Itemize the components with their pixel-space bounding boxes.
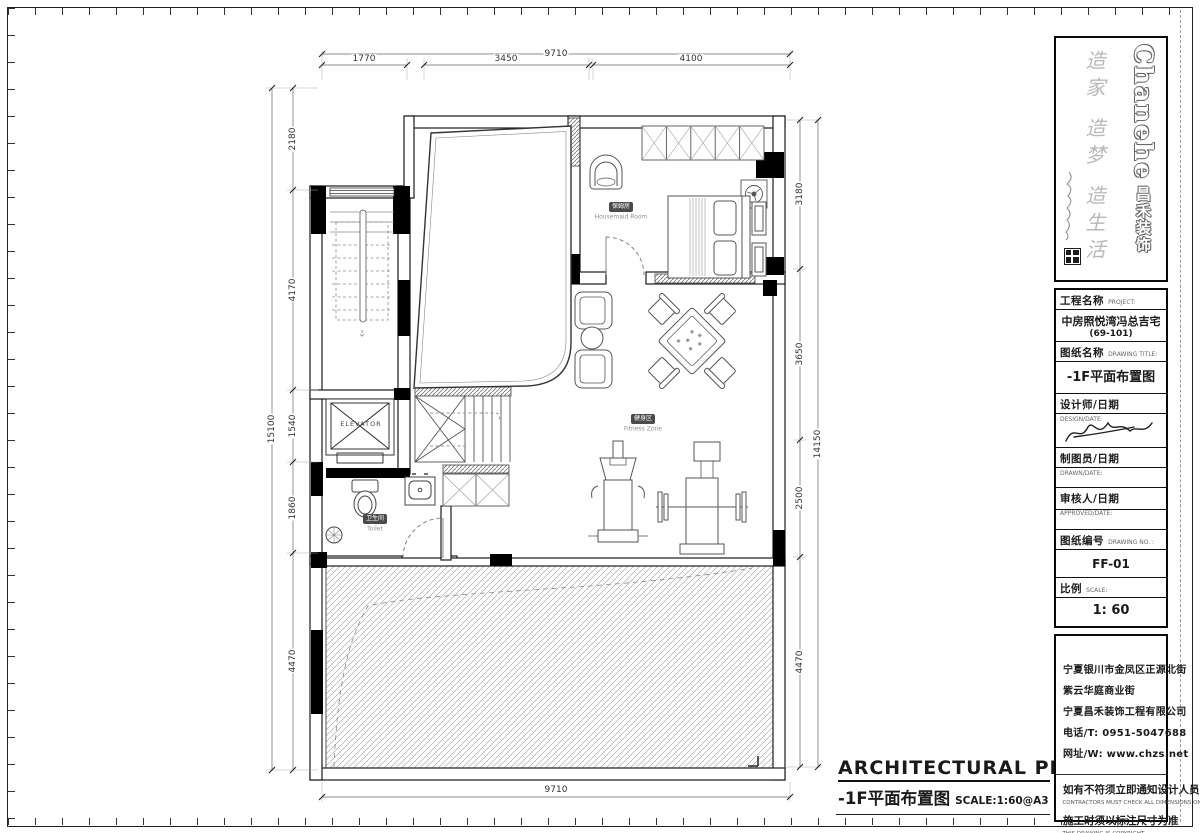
- dim-right-seg1: 3180: [795, 182, 805, 207]
- project-label-en: PROJECT:: [1108, 299, 1135, 306]
- brand-logo-cn: 昌禾装饰: [1133, 186, 1154, 254]
- drawing-sheet: 9710 1770 3450 4100 9710 15100 2180 4170…: [0, 0, 1200, 833]
- plan-caption-title-en: ARCHITECTURAL PLAN: [838, 757, 1050, 782]
- tea-table: [581, 327, 603, 349]
- dim-left-seg4: 1860: [288, 496, 298, 521]
- approver-label-row: 审核人/日期 APPROVED/DATE:: [1056, 488, 1166, 510]
- dim-right-seg4: 4470: [795, 650, 805, 675]
- plan-caption: ARCHITECTURAL PLAN -1F平面布置图 SCALE:1:60@A…: [838, 757, 1050, 809]
- project-value-row: 中房照悦湾冯总吉宅 (69-101): [1056, 310, 1166, 342]
- note1-cn: 如有不符须立即通知设计人员: [1056, 783, 1166, 798]
- company-website: 网址/W: www.chzs.net: [1056, 744, 1166, 765]
- note1-en: CONTRACTORS MUST CHECK ALL DIMENSIONS ON…: [1056, 798, 1157, 806]
- designer-signature: [1060, 417, 1160, 445]
- bench-press: [656, 442, 748, 554]
- bedroom-wardrobe: [642, 126, 764, 160]
- dim-right-overall: 14150: [813, 429, 823, 460]
- mahjong-table: [646, 293, 739, 390]
- calligraphy-signature: [1062, 168, 1076, 242]
- toilet-fixtures: [326, 480, 378, 543]
- sink: [405, 474, 435, 505]
- dim-left-seg3: 1540: [288, 414, 298, 439]
- caption-rule: [836, 814, 1050, 815]
- drawing-title-value: -1F平面布置图: [1067, 370, 1155, 385]
- toilet-badge: 卫生间: [363, 514, 387, 524]
- stair-lower: [415, 396, 510, 462]
- plan-caption-title-cn: -1F平面布置图: [838, 785, 950, 809]
- project-label-row: 工程名称 PROJECT:: [1056, 290, 1166, 310]
- drawing-no-label: 图纸编号: [1060, 535, 1104, 547]
- elevator-label: ELEVATOR: [340, 420, 381, 428]
- address-block: 宁夏银川市金凤区正源北街 紫云华庭商业街 宁夏昌禾装饰工程有限公司 电话/T: …: [1054, 634, 1168, 822]
- designer-label-row: 设计师/日期 DESIGN/DATE:: [1056, 394, 1166, 414]
- dim-left-seg5: 4470: [288, 649, 298, 674]
- dim-top-seg2: 3450: [494, 54, 519, 64]
- bedroom-door: [606, 237, 644, 275]
- drawing-no-label-row: 图纸编号 DRAWING NO. :: [1056, 530, 1166, 550]
- scale-label-row: 比例 SCALE:: [1056, 578, 1166, 598]
- brand-slogan: 造家 造梦 造生活: [1080, 50, 1109, 266]
- approver-label-en: APPROVED/DATE:: [1060, 510, 1112, 517]
- stair-upper: [330, 210, 394, 336]
- housemaid-room-badge: 保姆房: [609, 202, 633, 212]
- scale-value: 1: 60: [1093, 603, 1130, 618]
- scale-label-en: SCALE:: [1086, 587, 1107, 594]
- title-block: 工程名称 PROJECT: 中房照悦湾冯总吉宅 (69-101) 图纸名称 DR…: [1054, 288, 1168, 628]
- dim-top-overall: 9710: [544, 49, 569, 59]
- project-label: 工程名称: [1060, 295, 1104, 307]
- company-seal: [1064, 248, 1081, 265]
- company-phone: 电话/T: 0951-5047688: [1056, 723, 1166, 744]
- fitness-zone-label-en: Fitness Zone: [624, 426, 662, 433]
- note2-en: THIS DRAWING IS COPYRIGHT: [1056, 829, 1157, 833]
- dim-top-seg1: 1770: [352, 54, 377, 64]
- toilet-label-en: Toilet: [367, 526, 383, 533]
- dim-left-seg2: 4170: [288, 278, 298, 303]
- designer-signature-cell: [1056, 414, 1166, 448]
- project-unit: (69-101): [1060, 329, 1162, 339]
- drawing-title-label-en: DRAWING TITLE:: [1108, 351, 1157, 358]
- plan-caption-scale: SCALE:1:60@A3: [955, 795, 1049, 807]
- drawing-title-label-row: 图纸名称 DRAWING TITLE:: [1056, 342, 1166, 362]
- address-divider: [1056, 774, 1166, 775]
- hatched-area: [326, 566, 776, 769]
- window: [330, 188, 394, 196]
- drawing-title-value-row: -1F平面布置图: [1056, 362, 1166, 394]
- fitness-zone-badge: 健身区: [631, 414, 655, 424]
- dim-left-overall: 15100: [267, 414, 277, 445]
- company-address-1: 宁夏银川市金凤区正源北街: [1056, 660, 1166, 681]
- toilet-door: [403, 518, 443, 558]
- void-ramp: [414, 126, 571, 388]
- drafter-label: 制图员/日期: [1060, 453, 1119, 465]
- dim-right-seg2: 3650: [795, 342, 805, 367]
- brand-logo-en: Chanehe: [1129, 44, 1158, 180]
- elevator: [326, 399, 394, 463]
- company-address-2: 紫云华庭商业街: [1056, 681, 1166, 702]
- floor-plan-drawing: [0, 0, 1200, 833]
- scale-label: 比例: [1060, 583, 1082, 595]
- drawing-no-value: FF-01: [1092, 557, 1130, 571]
- approver-label: 审核人/日期: [1060, 493, 1119, 505]
- drawing-no-label-en: DRAWING NO. :: [1108, 539, 1154, 546]
- project-name: 中房照悦湾冯总吉宅: [1060, 313, 1162, 329]
- company-name: 宁夏昌禾装饰工程有限公司: [1056, 702, 1166, 723]
- armchairs: [575, 292, 612, 388]
- dim-left-seg1: 2180: [288, 127, 298, 152]
- scale-value-row: 1: 60: [1056, 598, 1166, 622]
- designer-label: 设计师/日期: [1060, 399, 1119, 411]
- housemaid-room-label-en: Housemaid Room: [595, 214, 648, 221]
- logo-block: Chanehe 昌禾装饰 造家 造梦 造生活: [1054, 36, 1168, 282]
- dim-top-seg3: 4100: [679, 54, 704, 64]
- exercise-machine: [588, 441, 648, 542]
- lounge-chair: [590, 155, 622, 189]
- dim-right-seg3: 2500: [795, 486, 805, 511]
- cabinets: [443, 474, 509, 506]
- drafter-label-en: DRAWN/DATE:: [1060, 470, 1102, 477]
- dim-bottom-overall: 9710: [544, 785, 569, 795]
- drawing-no-value-row: FF-01: [1056, 550, 1166, 578]
- note2-cn: 施工时须以标注尺寸为准: [1056, 814, 1166, 829]
- drawing-title-label: 图纸名称: [1060, 347, 1104, 359]
- drafter-label-row: 制图员/日期 DRAWN/DATE:: [1056, 448, 1166, 468]
